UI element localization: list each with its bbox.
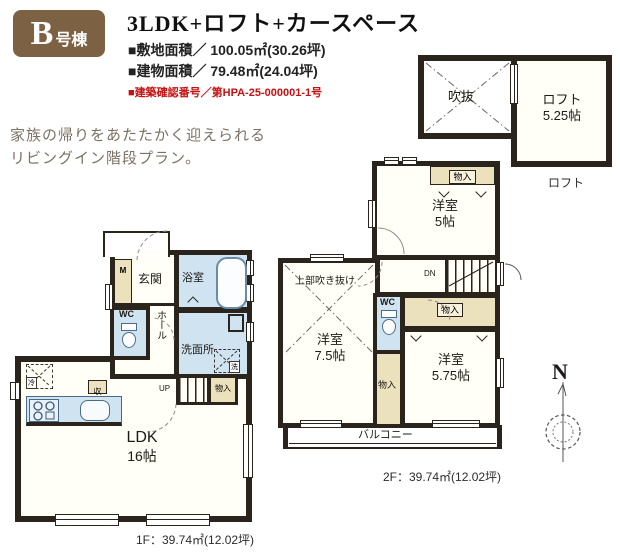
window <box>402 157 417 165</box>
floor2-caption: 2F：39.74㎡(12.02坪) <box>383 468 501 485</box>
closet-2f-top: 物入 <box>430 166 495 185</box>
refrigerator-label: 冷 <box>26 377 37 389</box>
ldk-label: LDK 16帖 <box>112 428 172 466</box>
window <box>384 157 399 165</box>
closet-2f-right-label: 物入 <box>437 303 463 317</box>
site-area-line: ■敷地面積／ 100.05㎡(30.26坪) <box>128 40 326 60</box>
window <box>246 322 254 342</box>
unit-badge-suffix: 号棟 <box>55 26 87 50</box>
floorplan-flyer: B号棟 3LDK+ロフト+カースペース ■敷地面積／ 100.05㎡(30.26… <box>0 0 620 556</box>
window <box>300 420 342 428</box>
window <box>246 284 254 302</box>
closet-2f-top-label: 物入 <box>449 170 475 184</box>
storage-box: 収 <box>88 380 107 394</box>
refrigerator-space-icon: 冷 <box>26 364 53 389</box>
building-area-line: ■建物面積／ 79.48㎡(24.04坪) <box>128 61 318 81</box>
entrance-label: 玄関 <box>138 272 162 287</box>
window <box>55 514 119 526</box>
bedroom-5-label: 洋室 5帖 <box>415 198 475 231</box>
bedroom-5-75-label: 洋室 5.75帖 <box>418 352 484 385</box>
void-above-label: 上部吹き抜け <box>295 276 355 289</box>
wall-segment <box>112 303 176 306</box>
wc-1f-label: WC <box>119 309 134 320</box>
loft-room-label: ロフト 5.25帖 <box>531 92 593 125</box>
loft-caption: ロフト <box>548 174 584 191</box>
window <box>432 420 480 428</box>
window <box>243 424 253 478</box>
loft-opening-window <box>510 64 518 104</box>
balcony-rail-line <box>289 443 496 444</box>
window <box>146 514 210 526</box>
stove-icon <box>29 399 59 422</box>
bedroom-7-5-label: 洋室 7.5帖 <box>300 332 360 365</box>
bathroom-label: 浴室 <box>182 272 204 286</box>
window <box>105 284 113 310</box>
window <box>496 262 504 286</box>
sink-icon <box>80 400 110 421</box>
void-label: 吹抜 <box>448 89 474 105</box>
entrance-door-gap <box>136 250 166 255</box>
closet-1f: 物入 <box>208 375 238 405</box>
unit-badge: B号棟 <box>13 10 105 57</box>
toilet-icon <box>121 323 137 348</box>
unit-badge-letter: B <box>31 17 54 51</box>
window <box>246 260 254 276</box>
closet-2f-mid-label: 物入 <box>378 380 396 391</box>
meter-box-label: M <box>120 266 127 275</box>
tagline-line1: 家族の帰りをあたたかく迎えられる <box>10 124 266 145</box>
stairs-up-label: UP <box>159 384 170 394</box>
washer-space-icon: 洗 <box>214 349 240 373</box>
window <box>496 358 504 388</box>
washer-label: 洗 <box>229 361 240 373</box>
closet-1f-label: 物入 <box>215 384 231 393</box>
hall-label: ホール <box>153 310 166 340</box>
storage-box-label: 収 <box>94 387 102 396</box>
stairs-dn-label: DN <box>424 269 436 279</box>
wc-2f-label: WC <box>380 297 395 308</box>
building-permit-line: ■建築確認番号／第HPA-25-000001-1号 <box>128 84 322 100</box>
tagline-line2: リビングイン階段プラン。 <box>10 147 201 168</box>
window <box>310 254 344 262</box>
toilet-icon <box>381 310 397 335</box>
meter-box: M <box>114 259 132 307</box>
closet-2f-right: 物入 <box>400 293 500 331</box>
stairs-up <box>176 375 210 405</box>
sink-cabinet-icon <box>228 314 244 332</box>
page-title: 3LDK+ロフト+カースペース <box>127 6 420 38</box>
window <box>10 382 20 400</box>
floor1-caption: 1F：39.74㎡(12.02坪) <box>136 531 254 548</box>
stairs-down <box>445 260 495 292</box>
balcony-label: バルコニー <box>358 429 413 443</box>
bathtub-icon <box>216 257 247 309</box>
washroom-label: 洗面所 <box>181 344 214 358</box>
window <box>368 200 376 228</box>
compass-rose-icon <box>533 352 597 472</box>
